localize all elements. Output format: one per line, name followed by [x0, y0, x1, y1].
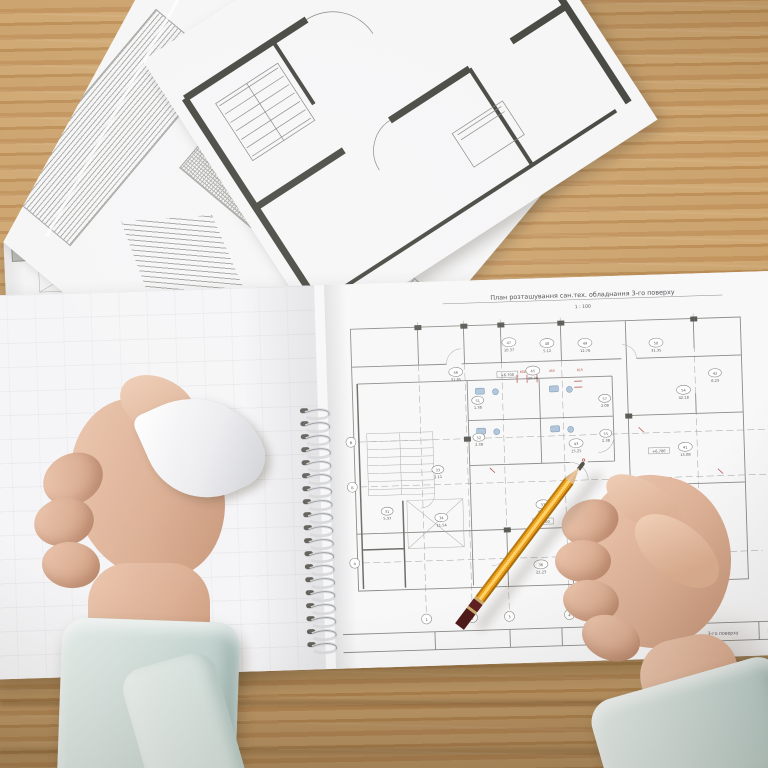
svg-text:6.23: 6.23	[711, 379, 719, 383]
red-dim: 600	[520, 370, 526, 374]
svg-text:31.35: 31.35	[651, 348, 661, 352]
photo-scene: План розташування сан.тех. обладнання 3-…	[0, 0, 768, 768]
svg-text:2.08: 2.08	[601, 404, 610, 408]
svg-text:1: 1	[425, 618, 427, 622]
svg-text:52: 52	[477, 436, 482, 440]
svg-text:46: 46	[453, 371, 458, 375]
svg-text:50: 50	[654, 341, 659, 345]
level-mark: +6.700	[501, 373, 515, 377]
svg-text:42.18: 42.18	[679, 396, 690, 400]
svg-text:47: 47	[507, 341, 512, 345]
svg-text:49: 49	[583, 342, 588, 346]
svg-text:51: 51	[475, 399, 480, 403]
spiral-binding	[299, 403, 347, 666]
svg-text:31: 31	[385, 510, 390, 514]
svg-text:48: 48	[545, 342, 550, 346]
svg-text:31.85: 31.85	[451, 378, 461, 382]
svg-text:33: 33	[436, 468, 441, 472]
svg-text:1.38: 1.38	[474, 406, 483, 410]
svg-text:42: 42	[713, 372, 718, 376]
svg-text:10.37: 10.37	[504, 348, 514, 352]
right-finger	[555, 540, 611, 582]
svg-text:36: 36	[539, 563, 544, 567]
svg-text:5.37: 5.37	[383, 517, 391, 521]
plan-scale: 1 : 100	[575, 304, 591, 311]
svg-text:5.12: 5.12	[543, 349, 551, 353]
svg-text:54: 54	[681, 389, 686, 393]
svg-text:2.11: 2.11	[434, 475, 442, 479]
svg-text:34: 34	[439, 516, 444, 520]
svg-text:22.23: 22.23	[536, 570, 546, 574]
svg-text:28.30: 28.30	[528, 376, 539, 380]
plan-title: План розташування сан.тех. обладнання 3-…	[490, 288, 675, 302]
svg-text:45: 45	[530, 369, 535, 373]
svg-text:3: 3	[508, 615, 510, 619]
red-dim: 455	[549, 369, 555, 373]
svg-text:2.38: 2.38	[475, 443, 484, 447]
svg-text:12.76: 12.76	[580, 349, 591, 353]
red-dim: 615	[577, 368, 583, 372]
svg-text:57: 57	[602, 397, 607, 401]
svg-text:11.54: 11.54	[436, 523, 447, 527]
